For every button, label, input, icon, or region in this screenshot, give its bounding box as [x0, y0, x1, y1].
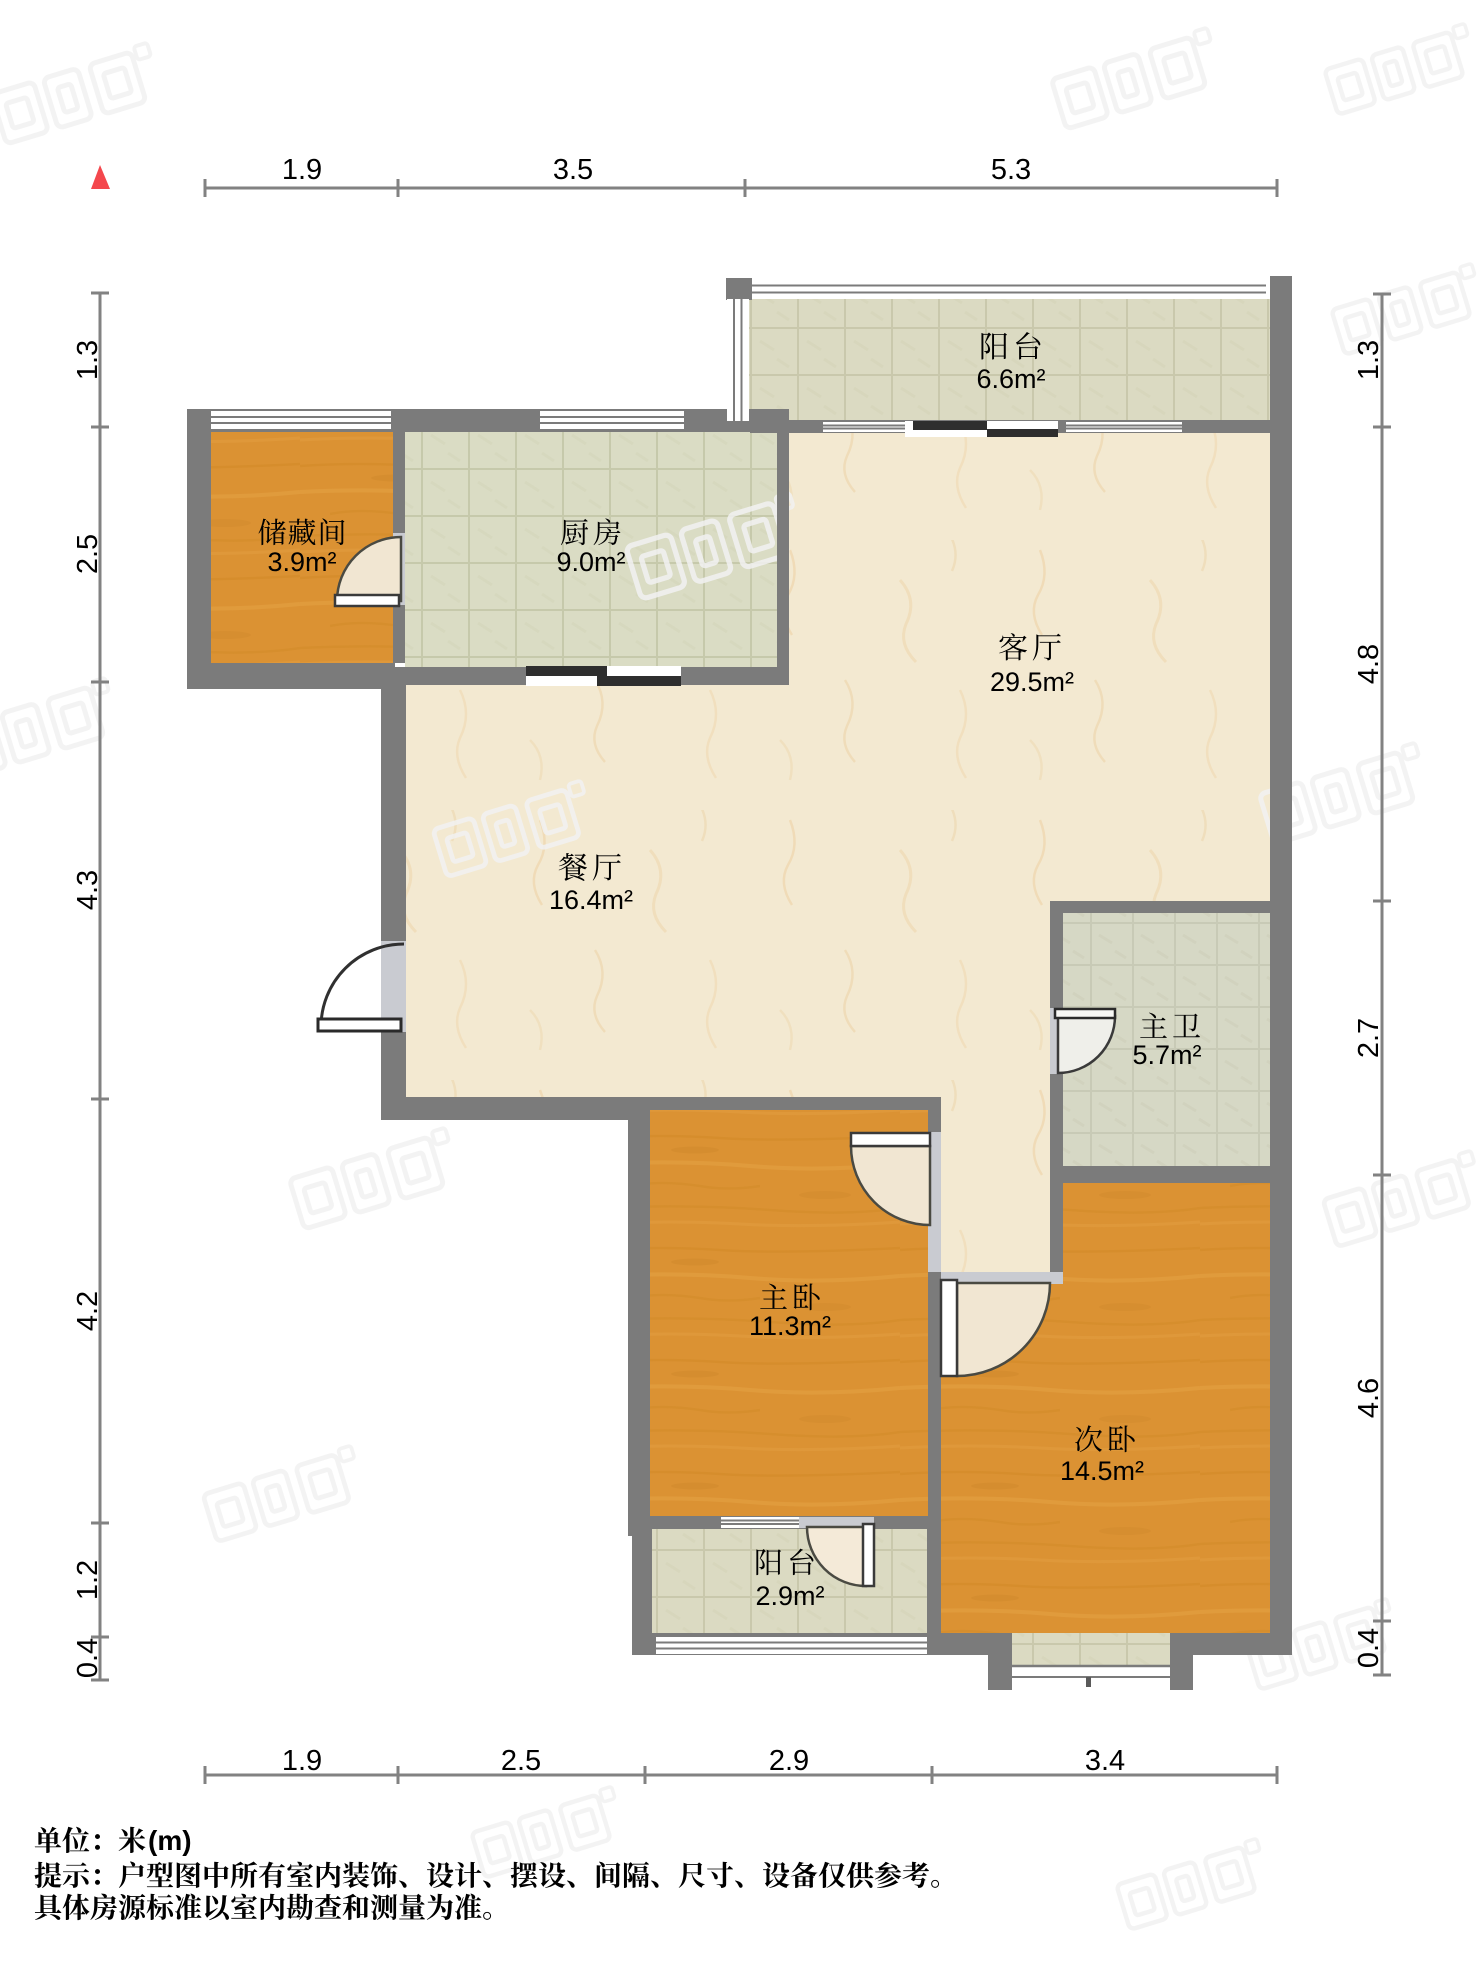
svg-text:4.8: 4.8	[1353, 644, 1385, 684]
svg-text:4.3: 4.3	[72, 870, 104, 910]
svg-text:(m): (m)	[148, 1825, 192, 1856]
svg-text:3.5: 3.5	[553, 154, 593, 186]
svg-text:6.6m²: 6.6m²	[976, 364, 1045, 394]
svg-text:0.4: 0.4	[1353, 1628, 1385, 1668]
svg-text:2.9: 2.9	[769, 1745, 809, 1777]
svg-text:2.5: 2.5	[501, 1745, 541, 1777]
svg-text:14.5m²: 14.5m²	[1060, 1456, 1144, 1486]
svg-text:5.3: 5.3	[991, 154, 1031, 186]
svg-text:4.2: 4.2	[72, 1291, 104, 1331]
svg-text:1.9: 1.9	[282, 154, 322, 186]
svg-text:9.0m²: 9.0m²	[556, 547, 625, 577]
svg-text:1.2: 1.2	[72, 1560, 104, 1600]
svg-text:2.5: 2.5	[72, 534, 104, 574]
svg-text:2.9m²: 2.9m²	[755, 1581, 824, 1611]
svg-text:1.3: 1.3	[1353, 340, 1385, 380]
svg-text:11.3m²: 11.3m²	[749, 1311, 831, 1341]
svg-text:5.7m²: 5.7m²	[1132, 1040, 1201, 1070]
svg-text:16.4m²: 16.4m²	[549, 885, 633, 915]
svg-text:3.4: 3.4	[1085, 1745, 1125, 1777]
svg-text:4.6: 4.6	[1353, 1378, 1385, 1418]
svg-text:0.4: 0.4	[72, 1638, 104, 1678]
svg-text:3.9m²: 3.9m²	[267, 547, 336, 577]
svg-text:2.7: 2.7	[1353, 1018, 1385, 1058]
svg-text:1.9: 1.9	[282, 1745, 322, 1777]
svg-text:29.5m²: 29.5m²	[990, 667, 1074, 697]
svg-text:1.3: 1.3	[72, 340, 104, 380]
